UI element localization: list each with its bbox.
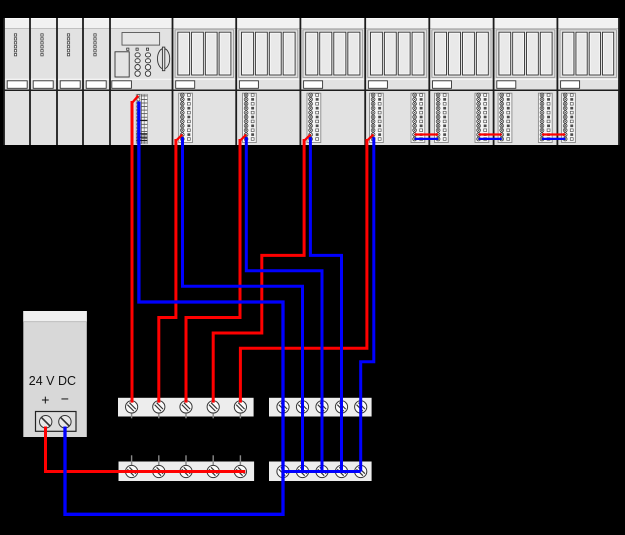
svg-text:+: + — [41, 392, 49, 408]
svg-text:24 V DC: 24 V DC — [29, 374, 76, 388]
svg-text:−: − — [61, 391, 69, 407]
